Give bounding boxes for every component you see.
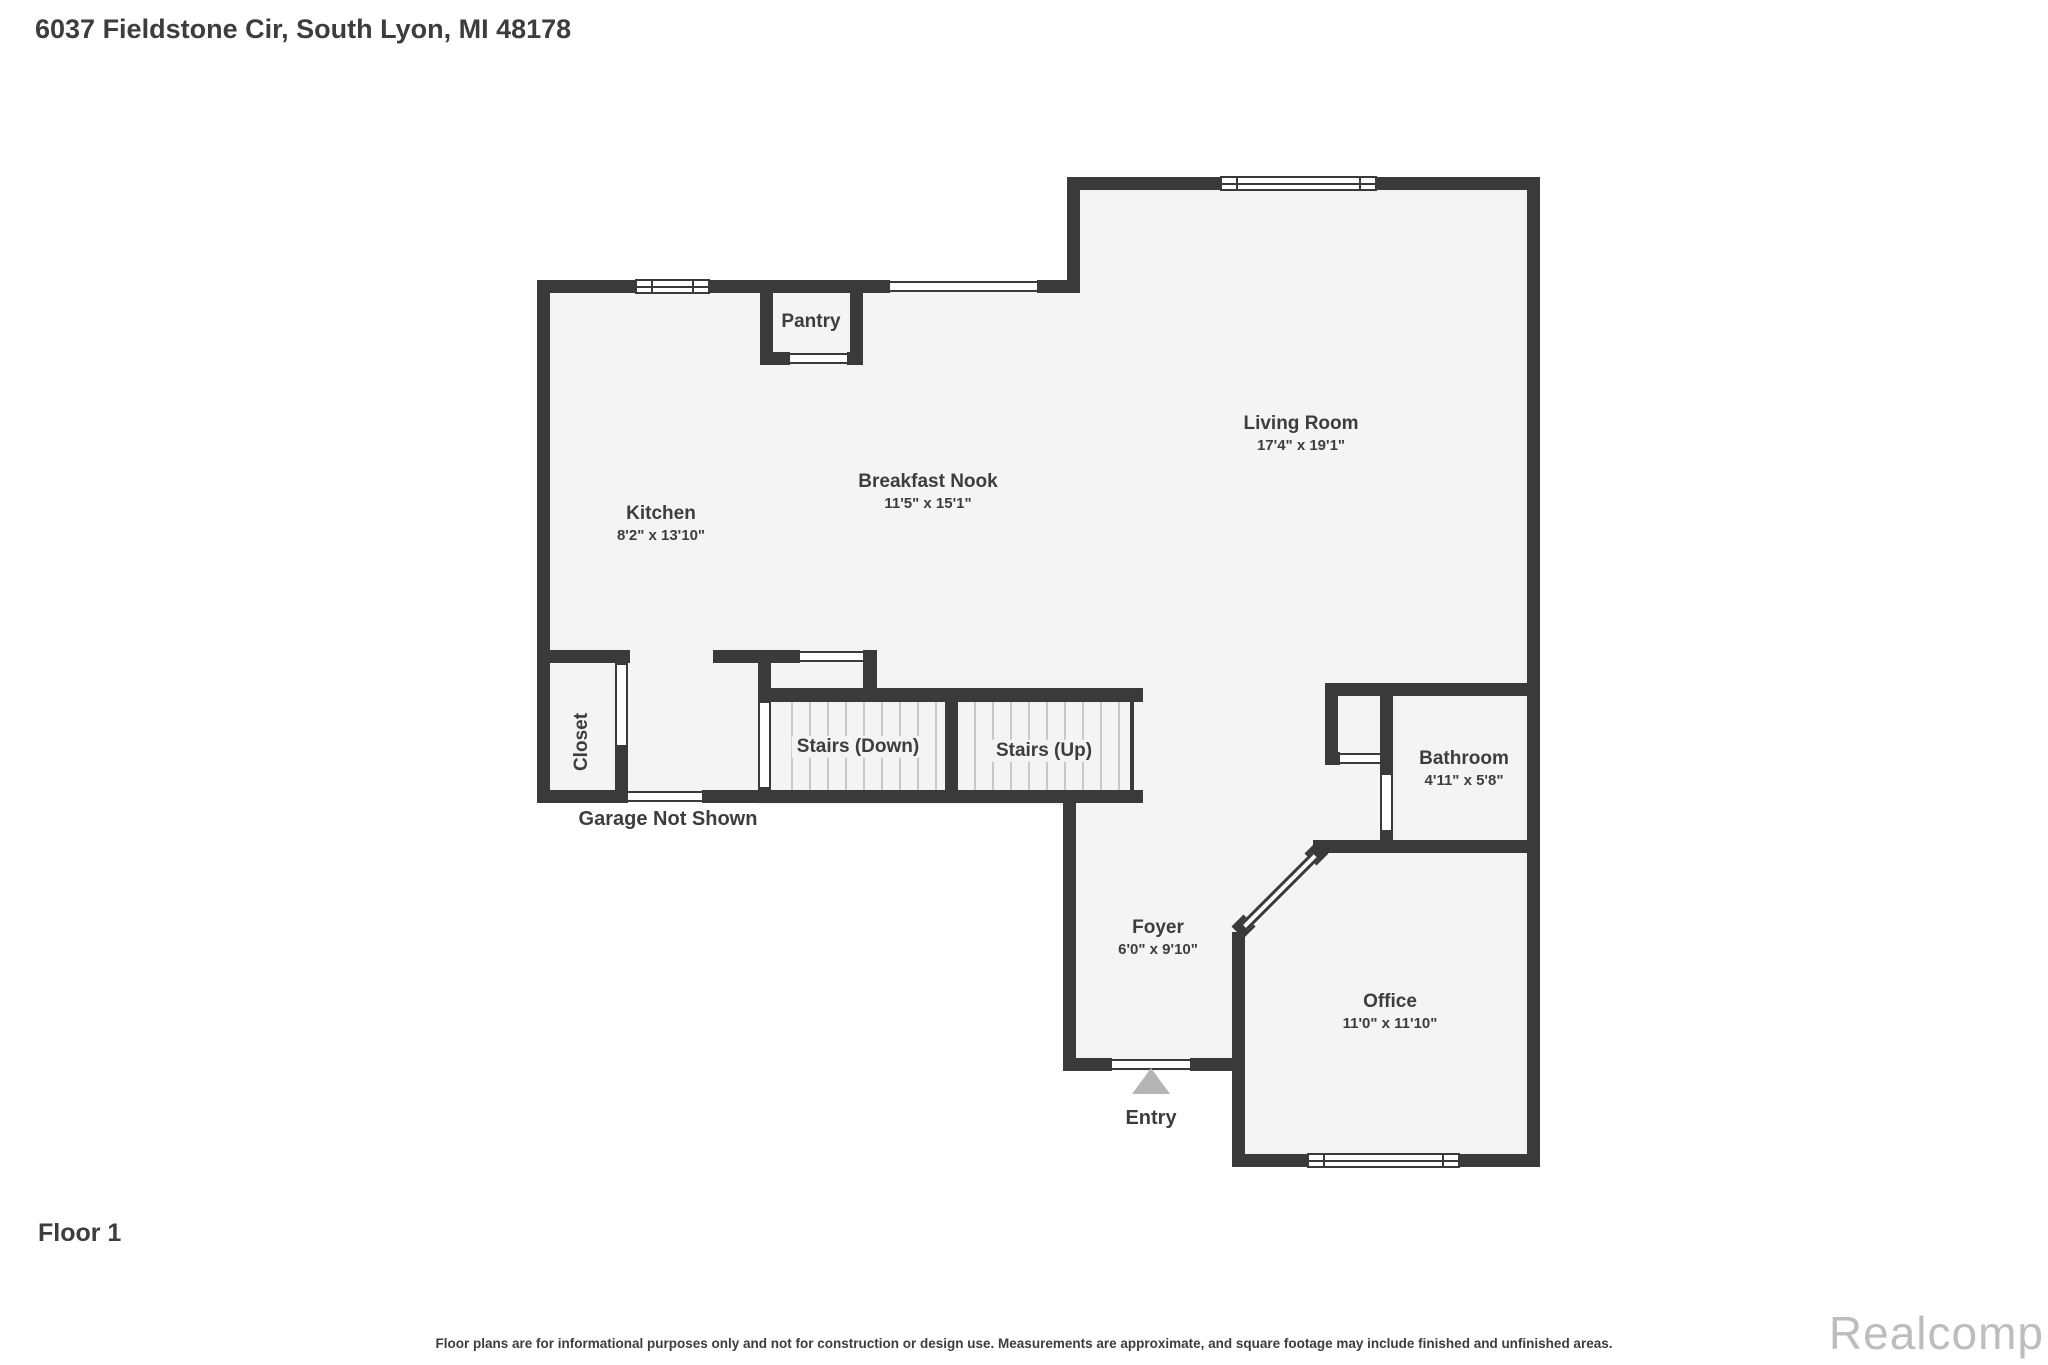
room-label-bathroom: Bathroom 4'11" x 5'8" xyxy=(1419,748,1509,790)
floor-plan: Pantry Kitchen 8'2" x 13'10" Breakfast N… xyxy=(0,0,2048,1365)
room-label-office: Office 11'0" x 11'10" xyxy=(1343,991,1438,1033)
wall xyxy=(537,280,550,803)
wall xyxy=(1460,1154,1540,1167)
wall xyxy=(1190,1058,1232,1071)
wall xyxy=(1377,177,1540,190)
wall xyxy=(945,688,958,803)
floor-plan-page: { "page_title": "6037 Fieldstone Cir, So… xyxy=(0,0,2048,1365)
floor-label: Floor 1 xyxy=(38,1219,121,1248)
room-label-foyer: Foyer 6'0" x 9'10" xyxy=(1118,917,1198,959)
disclaimer-text: Floor plans are for informational purpos… xyxy=(0,1336,2048,1351)
realcomp-watermark: Realcomp xyxy=(1829,1306,2044,1360)
wall xyxy=(615,650,628,665)
wall xyxy=(1325,752,1340,765)
wall xyxy=(1067,177,1220,190)
office-window xyxy=(1307,1153,1460,1168)
garage-note: Garage Not Shown xyxy=(579,808,758,832)
wall xyxy=(1063,793,1076,1071)
room-label-pantry: Pantry xyxy=(781,311,840,333)
wall xyxy=(758,787,771,803)
entry-arrow-icon xyxy=(1132,1068,1170,1094)
cased-opening xyxy=(890,281,1037,292)
room-label-kitchen: Kitchen 8'2" x 13'10" xyxy=(617,503,705,545)
living-room-window xyxy=(1220,176,1377,191)
wall xyxy=(537,790,623,803)
bathroom-door xyxy=(1380,775,1393,830)
wall xyxy=(1232,932,1245,1167)
room-label-stairs-down: Stairs (Down) xyxy=(792,736,924,758)
cased-opening xyxy=(800,651,863,662)
wall xyxy=(1063,1058,1112,1071)
room-label-living-room: Living Room 17'4" x 19'1" xyxy=(1243,413,1358,455)
wall xyxy=(1527,177,1540,1167)
room-label-closet: Closet xyxy=(571,713,593,771)
entry-label: Entry xyxy=(1125,1107,1176,1131)
pantry-door xyxy=(790,353,847,364)
wall xyxy=(710,280,890,293)
wall xyxy=(760,352,790,365)
room-label-stairs-up: Stairs (Up) xyxy=(991,740,1097,762)
wall xyxy=(1232,1154,1307,1167)
wall xyxy=(615,745,628,803)
garage-opening xyxy=(623,791,702,802)
wall xyxy=(1325,683,1540,696)
wall xyxy=(847,352,863,365)
room-label-breakfast-nook: Breakfast Nook 11'5" x 15'1" xyxy=(858,471,997,513)
wall xyxy=(1067,177,1080,293)
wall xyxy=(537,280,635,293)
stairs-door xyxy=(758,703,771,787)
wall xyxy=(713,650,800,663)
wall xyxy=(1313,840,1540,853)
kitchen-window xyxy=(635,279,710,294)
closet-door xyxy=(615,665,628,745)
wall xyxy=(1380,683,1393,775)
closet-opening xyxy=(1340,753,1382,764)
stairs-up-open-edge xyxy=(1130,702,1134,790)
